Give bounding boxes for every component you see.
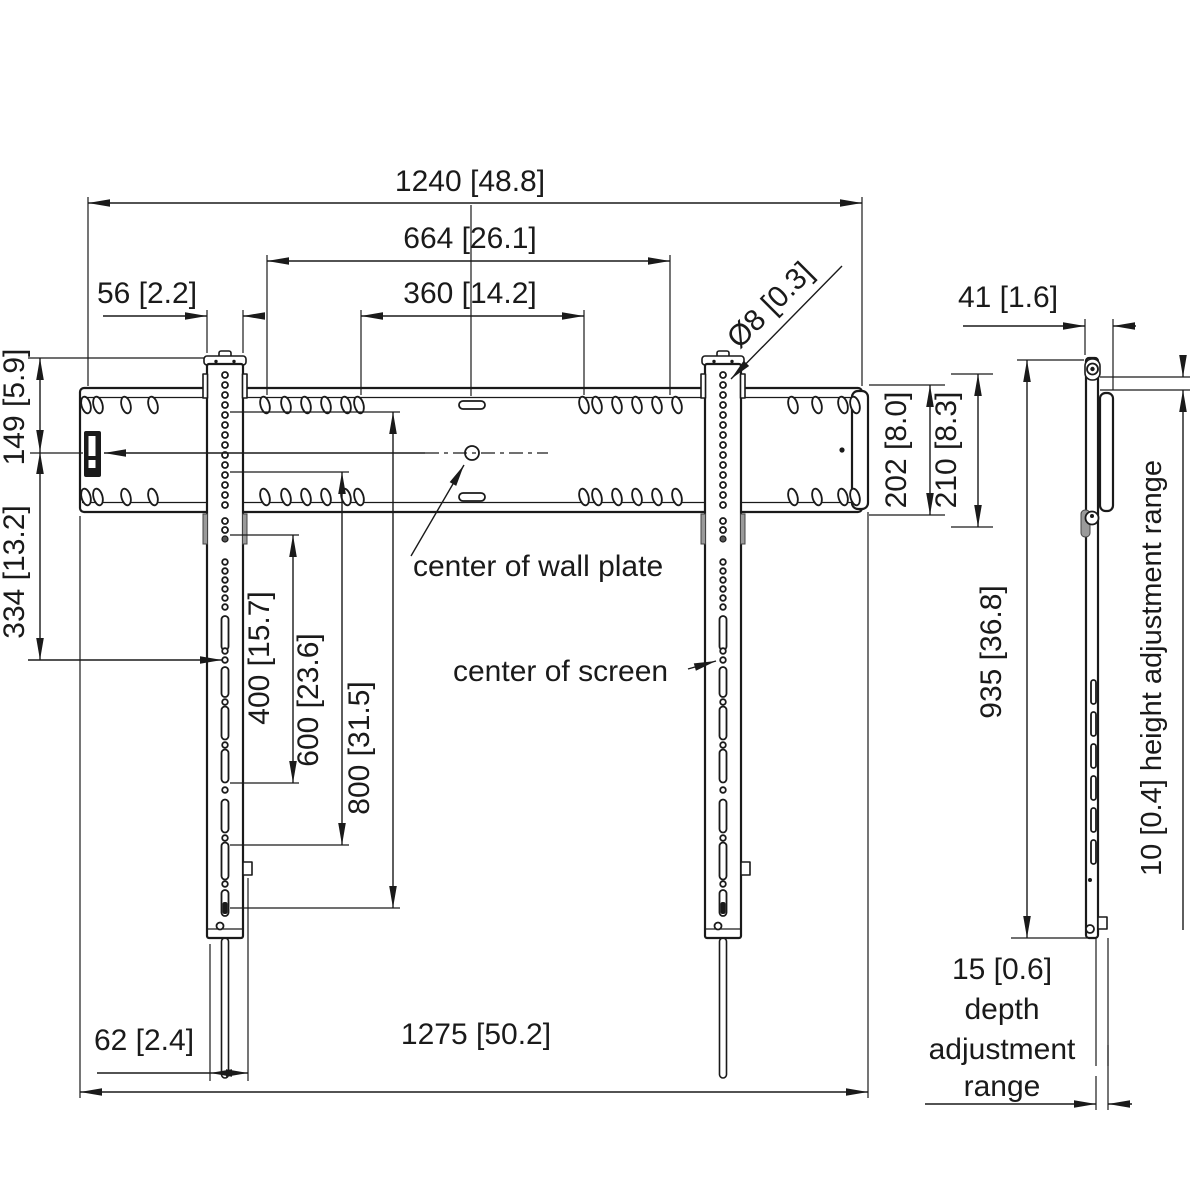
dim-400-label: 400 [15.7] xyxy=(243,591,276,724)
rail-hole xyxy=(720,402,726,408)
dim-149-label: 149 [5.9] xyxy=(0,349,31,466)
rail-hole xyxy=(222,392,228,398)
rail-hole xyxy=(222,586,228,592)
rail-hole xyxy=(720,742,726,748)
rail-hole xyxy=(222,657,228,663)
rail-hole xyxy=(720,835,726,841)
rail-hole xyxy=(222,382,228,388)
side-rail-slot xyxy=(1091,680,1096,704)
rail-hole xyxy=(720,595,726,601)
rail-hole xyxy=(720,881,726,887)
rail-hole xyxy=(720,432,726,438)
side-wall-plate-section xyxy=(1100,393,1113,511)
rail-hole xyxy=(222,595,228,601)
rail-hole xyxy=(222,604,228,610)
rail-hole xyxy=(222,482,228,488)
rail-bottom-tab xyxy=(741,862,750,875)
rail-hole xyxy=(720,699,726,705)
side-rail-slot xyxy=(1091,808,1096,832)
rail-hole xyxy=(720,372,726,378)
rail-hole xyxy=(720,577,726,583)
label-depth-adjust-word2: adjustment xyxy=(929,1033,1076,1066)
rail-bottom-hole xyxy=(217,923,224,930)
rail-side-tab xyxy=(701,514,706,544)
side-small-pin xyxy=(1088,878,1092,882)
rail-bottom-tab xyxy=(243,862,252,875)
rail-hole xyxy=(222,502,228,508)
note-center-wall-plate: center of wall plate xyxy=(413,550,663,583)
rail-hole xyxy=(222,422,228,428)
rail-hole xyxy=(720,382,726,388)
rail-hole xyxy=(720,392,726,398)
front-view: 1240 [48.8] 664 [26.1] 360 [14.2] 56 [2.… xyxy=(0,165,993,1098)
note-center-screen: center of screen xyxy=(453,655,668,688)
rail-hole xyxy=(222,568,228,574)
rail-strap xyxy=(720,938,727,1078)
rail-hole xyxy=(222,648,228,654)
rail-cap-pin xyxy=(214,360,217,363)
rail-slot xyxy=(720,667,727,697)
rail-hole xyxy=(222,402,228,408)
dim-935-label: 935 [36.8] xyxy=(975,585,1008,718)
rail-slot-insert xyxy=(223,902,228,914)
rail-slot xyxy=(720,707,727,740)
rail-strap xyxy=(222,938,229,1078)
rail-hole xyxy=(222,835,228,841)
dim-360-label: 360 [14.2] xyxy=(403,277,536,310)
wall-mount-dimension-drawing: 1240 [48.8] 664 [26.1] 360 [14.2] 56 [2.… xyxy=(0,0,1200,1200)
technical-drawing-page: 1240 [48.8] 664 [26.1] 360 [14.2] 56 [2.… xyxy=(0,0,1200,1200)
rail-slot xyxy=(720,750,727,783)
side-rail-slot xyxy=(1091,776,1096,800)
side-top-hook-pin xyxy=(1090,367,1094,371)
rail-hole xyxy=(720,648,726,654)
rail-cap-pin xyxy=(712,360,715,363)
rail-hole xyxy=(222,742,228,748)
rail-slot xyxy=(222,616,229,650)
rail-hole xyxy=(720,586,726,592)
label-depth-adjust-word1: depth xyxy=(964,993,1039,1026)
rail-hole xyxy=(222,462,228,468)
rail-hole xyxy=(720,442,726,448)
label-depth-adjust-word3: range xyxy=(964,1070,1041,1103)
rail-hole xyxy=(222,881,228,887)
rail-hole xyxy=(222,472,228,478)
dim-1275-label: 1275 [50.2] xyxy=(401,1018,551,1051)
plate-center-slot xyxy=(459,493,485,501)
side-rail-slot xyxy=(1091,712,1096,736)
dim-1240-label: 1240 [48.8] xyxy=(395,165,545,198)
rail-cap-pin xyxy=(730,360,733,363)
small-pin-hole xyxy=(839,447,844,452)
dim-62-label: 62 [2.4] xyxy=(94,1024,194,1057)
rail-hole xyxy=(720,527,726,533)
rail-hole xyxy=(222,577,228,583)
lock-clip xyxy=(84,431,101,477)
dim-56-label: 56 [2.2] xyxy=(97,277,197,310)
rail-slot xyxy=(222,667,229,697)
dim-800-label: 800 [31.5] xyxy=(343,681,376,814)
rail-slot xyxy=(222,707,229,740)
side-rail-slot xyxy=(1091,840,1096,864)
rail-hole xyxy=(222,518,228,524)
rail-hole xyxy=(222,412,228,418)
dim-210-label: 210 [8.3] xyxy=(930,392,963,509)
rail-slot xyxy=(720,616,727,650)
rail-hole xyxy=(720,472,726,478)
rail-hole-dark xyxy=(720,536,726,542)
rail-hole xyxy=(222,442,228,448)
side-view: 41 [1.6] 935 [36.8] 10 [0.4] height adju… xyxy=(925,281,1190,1110)
rail-hole xyxy=(720,559,726,565)
rail-hole xyxy=(720,568,726,574)
rail-hole xyxy=(720,604,726,610)
rail-side-tab xyxy=(243,514,248,544)
dim-664-label: 664 [26.1] xyxy=(403,222,536,255)
dim-334-label: 334 [13.2] xyxy=(0,505,31,638)
rail-hole xyxy=(720,787,726,793)
rail-cap-pin xyxy=(232,360,235,363)
rail-hole xyxy=(720,482,726,488)
dim-202-label: 202 [8.0] xyxy=(880,392,913,509)
label-height-adjustment-range: 10 [0.4] height adjustment range xyxy=(1136,460,1168,876)
rail-hole xyxy=(720,657,726,663)
rail-hole xyxy=(222,559,228,565)
rail-hole-dark xyxy=(222,536,228,542)
rail-slot xyxy=(222,843,229,880)
rail-hole xyxy=(222,432,228,438)
rail-hole xyxy=(720,422,726,428)
rail-hole xyxy=(222,492,228,498)
rail-hole xyxy=(720,412,726,418)
dim-41-label: 41 [1.6] xyxy=(958,281,1058,314)
rail-hole xyxy=(720,452,726,458)
rail-hole xyxy=(222,787,228,793)
rail-bottom-hole xyxy=(715,923,722,930)
rail-side-tab xyxy=(701,374,706,398)
side-bottom-hole xyxy=(1086,925,1094,933)
rail-slot xyxy=(720,800,727,833)
rail-hole xyxy=(222,699,228,705)
rail-hole xyxy=(720,502,726,508)
rail-side-tab xyxy=(203,514,208,544)
dim-600-label: 600 [23.6] xyxy=(292,633,325,766)
rail-slot-insert xyxy=(721,902,726,914)
plate-center-slot xyxy=(459,401,485,409)
side-rail-slot xyxy=(1091,744,1096,768)
label-depth-adjust-value: 15 [0.6] xyxy=(952,953,1052,986)
rail-hole xyxy=(720,492,726,498)
side-bottom-tab xyxy=(1098,917,1107,929)
rail-slot xyxy=(222,750,229,783)
rail-hole xyxy=(720,518,726,524)
rail-hole xyxy=(720,462,726,468)
rail-side-tab xyxy=(203,374,208,398)
rail-slot xyxy=(720,843,727,880)
rail-hole xyxy=(222,372,228,378)
rail-side-tab xyxy=(243,374,248,398)
rail-side-tab xyxy=(741,374,746,398)
rail-slot xyxy=(222,800,229,833)
rail-side-tab xyxy=(741,514,746,544)
rail-hole xyxy=(222,527,228,533)
